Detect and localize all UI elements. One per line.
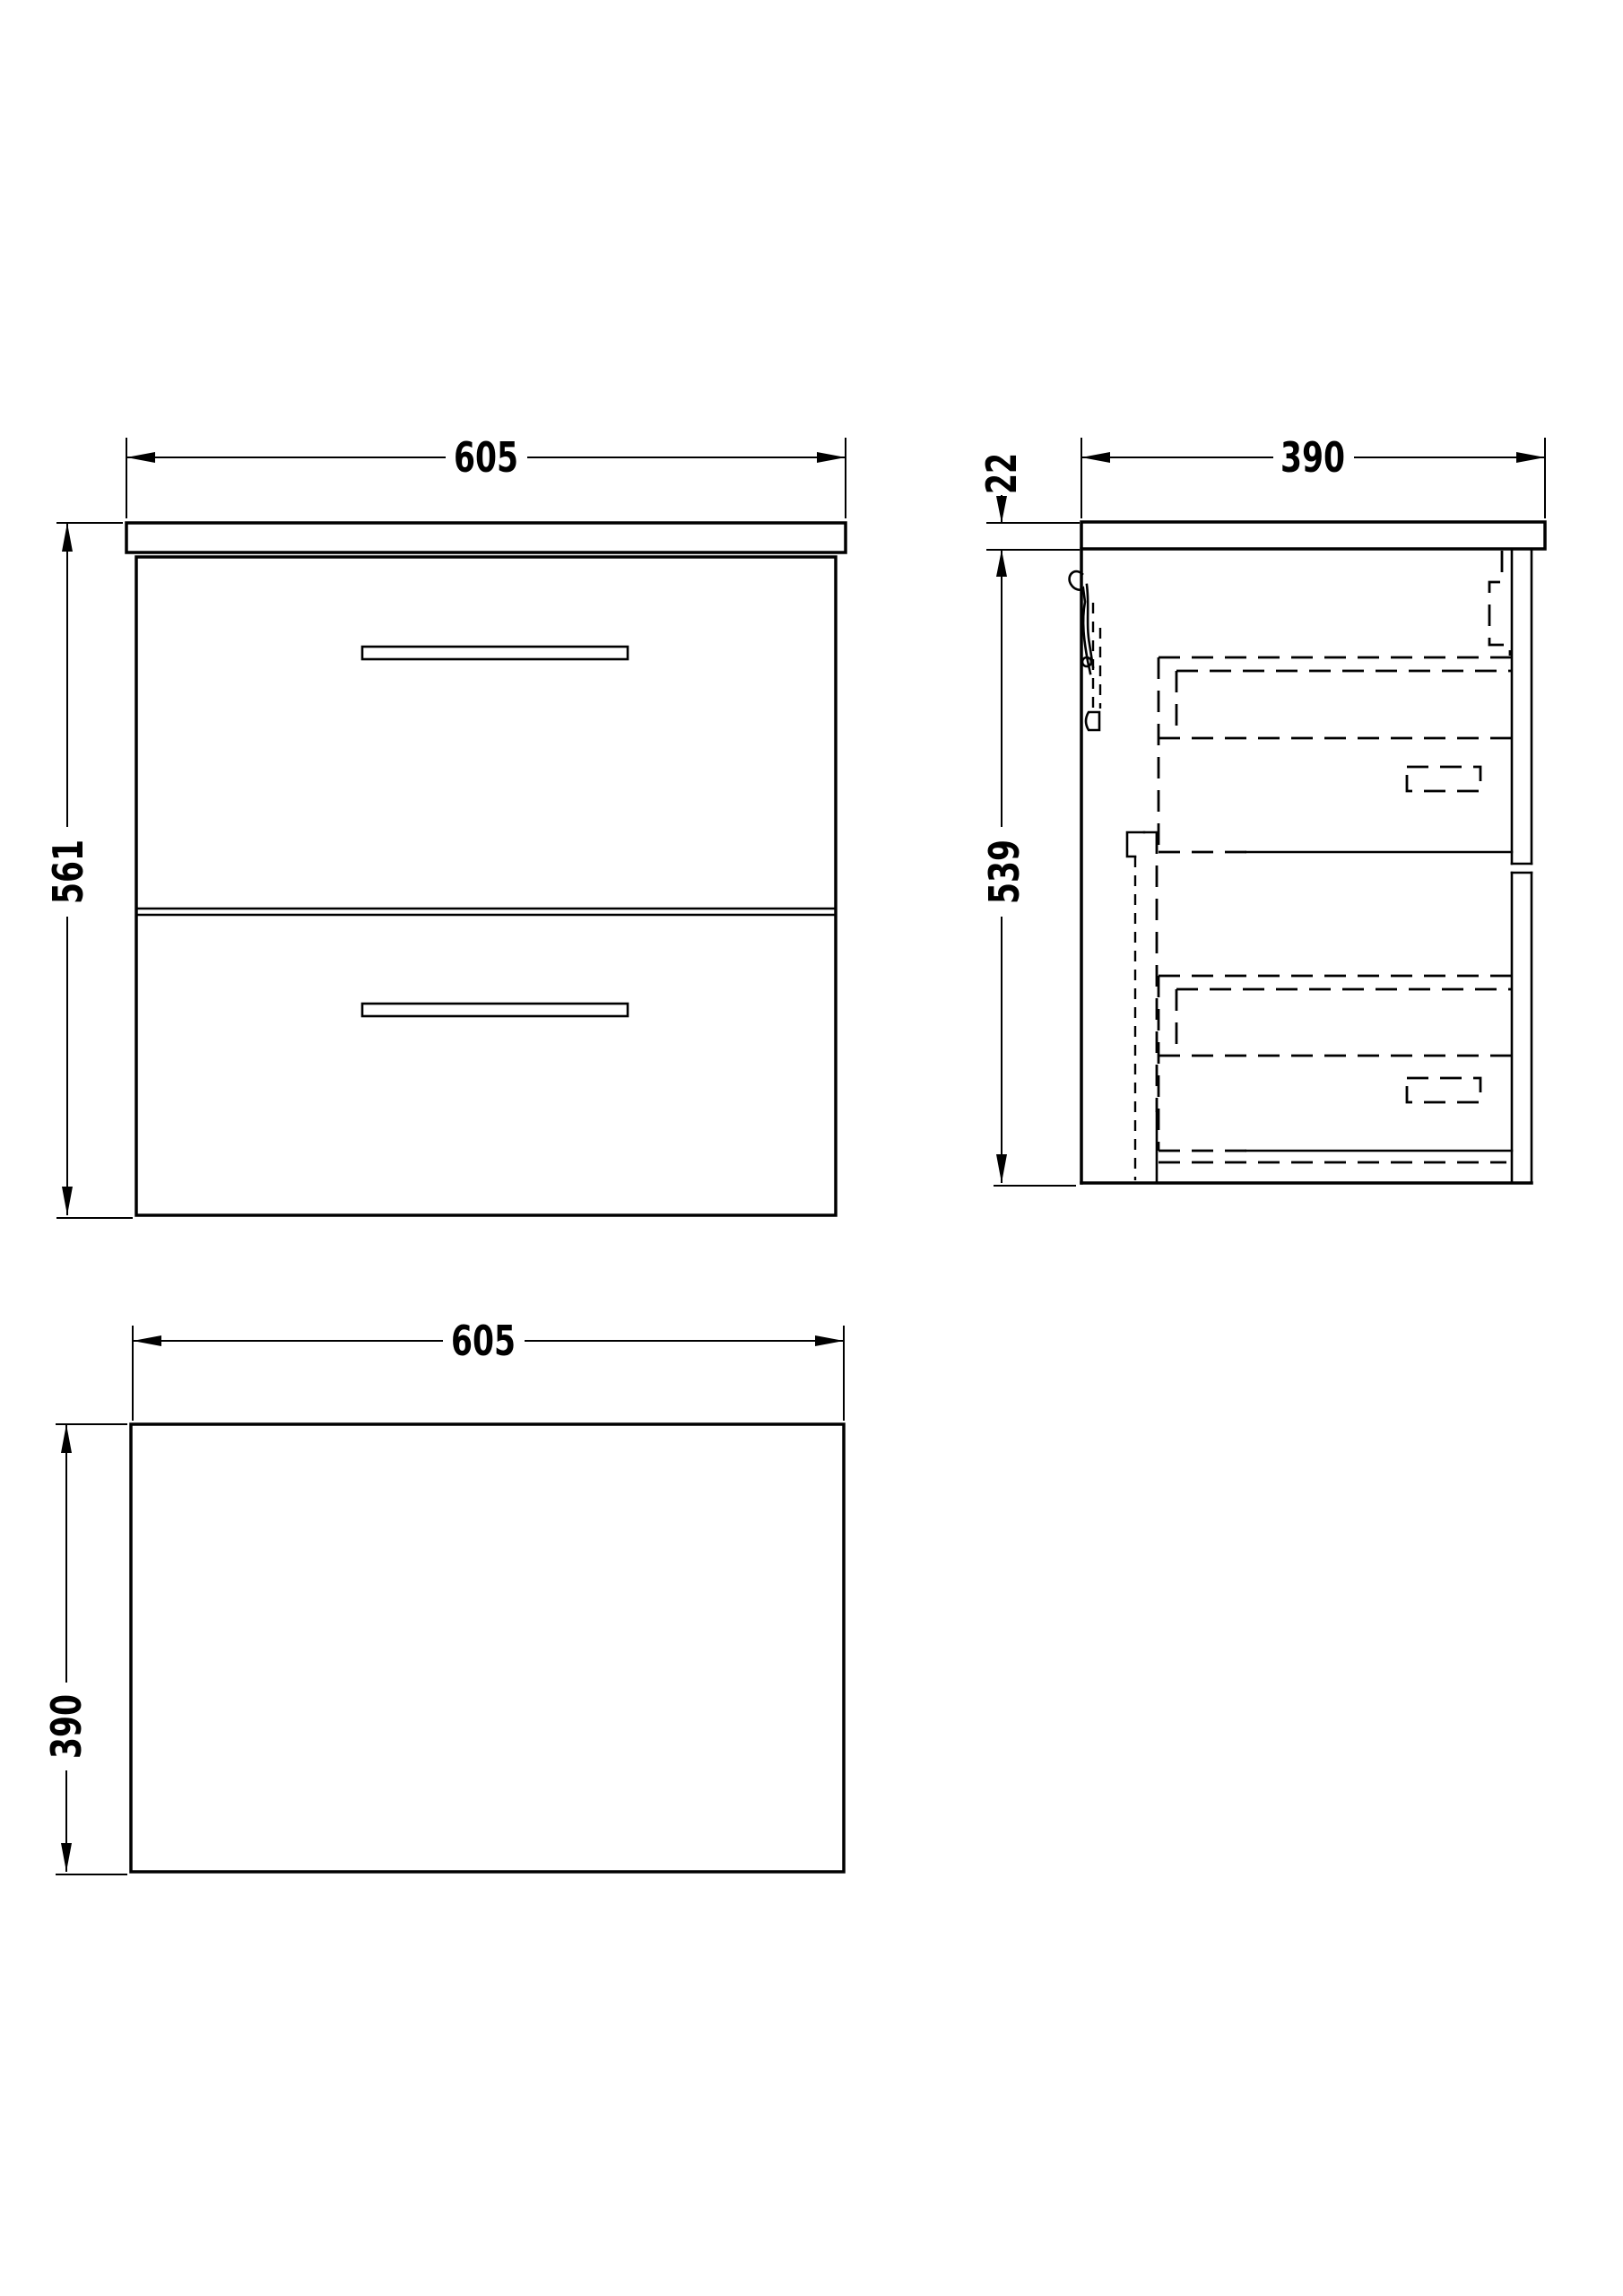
dimension-label: 22: [977, 453, 1026, 494]
dimension-label: 605: [451, 1317, 516, 1365]
side-depth-dimension: 390: [1081, 433, 1545, 518]
arrowhead: [1081, 452, 1110, 463]
hanger-foot: [1086, 712, 1099, 730]
arrowhead: [996, 496, 1007, 523]
arrowhead: [62, 523, 73, 552]
front-countertop: [126, 523, 846, 552]
front-lower-drawer-handle: [362, 1004, 628, 1016]
arrowhead: [996, 1154, 1007, 1183]
front-width-dimension: 605: [126, 433, 846, 518]
technical-drawing-page: 605 561: [0, 0, 1623, 2296]
arrowhead: [133, 1335, 161, 1346]
front-view: 605 561: [44, 433, 846, 1218]
lower-drawer-handle-fixing: [1407, 1078, 1480, 1102]
dimension-label: 390: [42, 1694, 91, 1759]
front-height-dimension: 561: [44, 523, 133, 1218]
upper-drawer-handle-fixing: [1407, 767, 1480, 791]
vanity-unit-technical-drawing: 605 561: [0, 0, 1623, 2296]
dimension-label: 539: [980, 839, 1028, 904]
wall-hanger-bracket: [1070, 571, 1100, 730]
side-countertop: [1081, 522, 1545, 549]
front-upper-drawer-handle: [362, 647, 628, 659]
side-counter-thickness-dimension: 22: [977, 453, 1080, 577]
arrowhead: [815, 1335, 844, 1346]
arrowhead: [126, 452, 155, 463]
dimension-label: 605: [454, 433, 518, 482]
side-view: 390 22 539: [977, 433, 1545, 1186]
arrowhead: [1516, 452, 1545, 463]
plan-width-dimension: 605: [133, 1317, 844, 1421]
plan-countertop-outline: [131, 1424, 844, 1872]
plan-depth-dimension: 390: [42, 1424, 127, 1874]
arrowhead: [817, 452, 846, 463]
arrowhead: [62, 1187, 73, 1215]
dimension-label: 390: [1280, 433, 1345, 482]
plan-view: 605 390: [42, 1317, 844, 1874]
arrowhead: [61, 1843, 72, 1872]
drawer-runner-step: [1489, 551, 1510, 656]
dimension-label: 561: [44, 839, 92, 904]
front-cabinet-outline: [136, 557, 836, 1215]
arrowhead: [61, 1424, 72, 1453]
back-panel-top-step: [1127, 832, 1144, 857]
side-carcass-height-dimension: 539: [980, 550, 1076, 1186]
side-cabinet-outline: [1081, 549, 1532, 1183]
side-drawer-internals: [1127, 551, 1512, 1183]
